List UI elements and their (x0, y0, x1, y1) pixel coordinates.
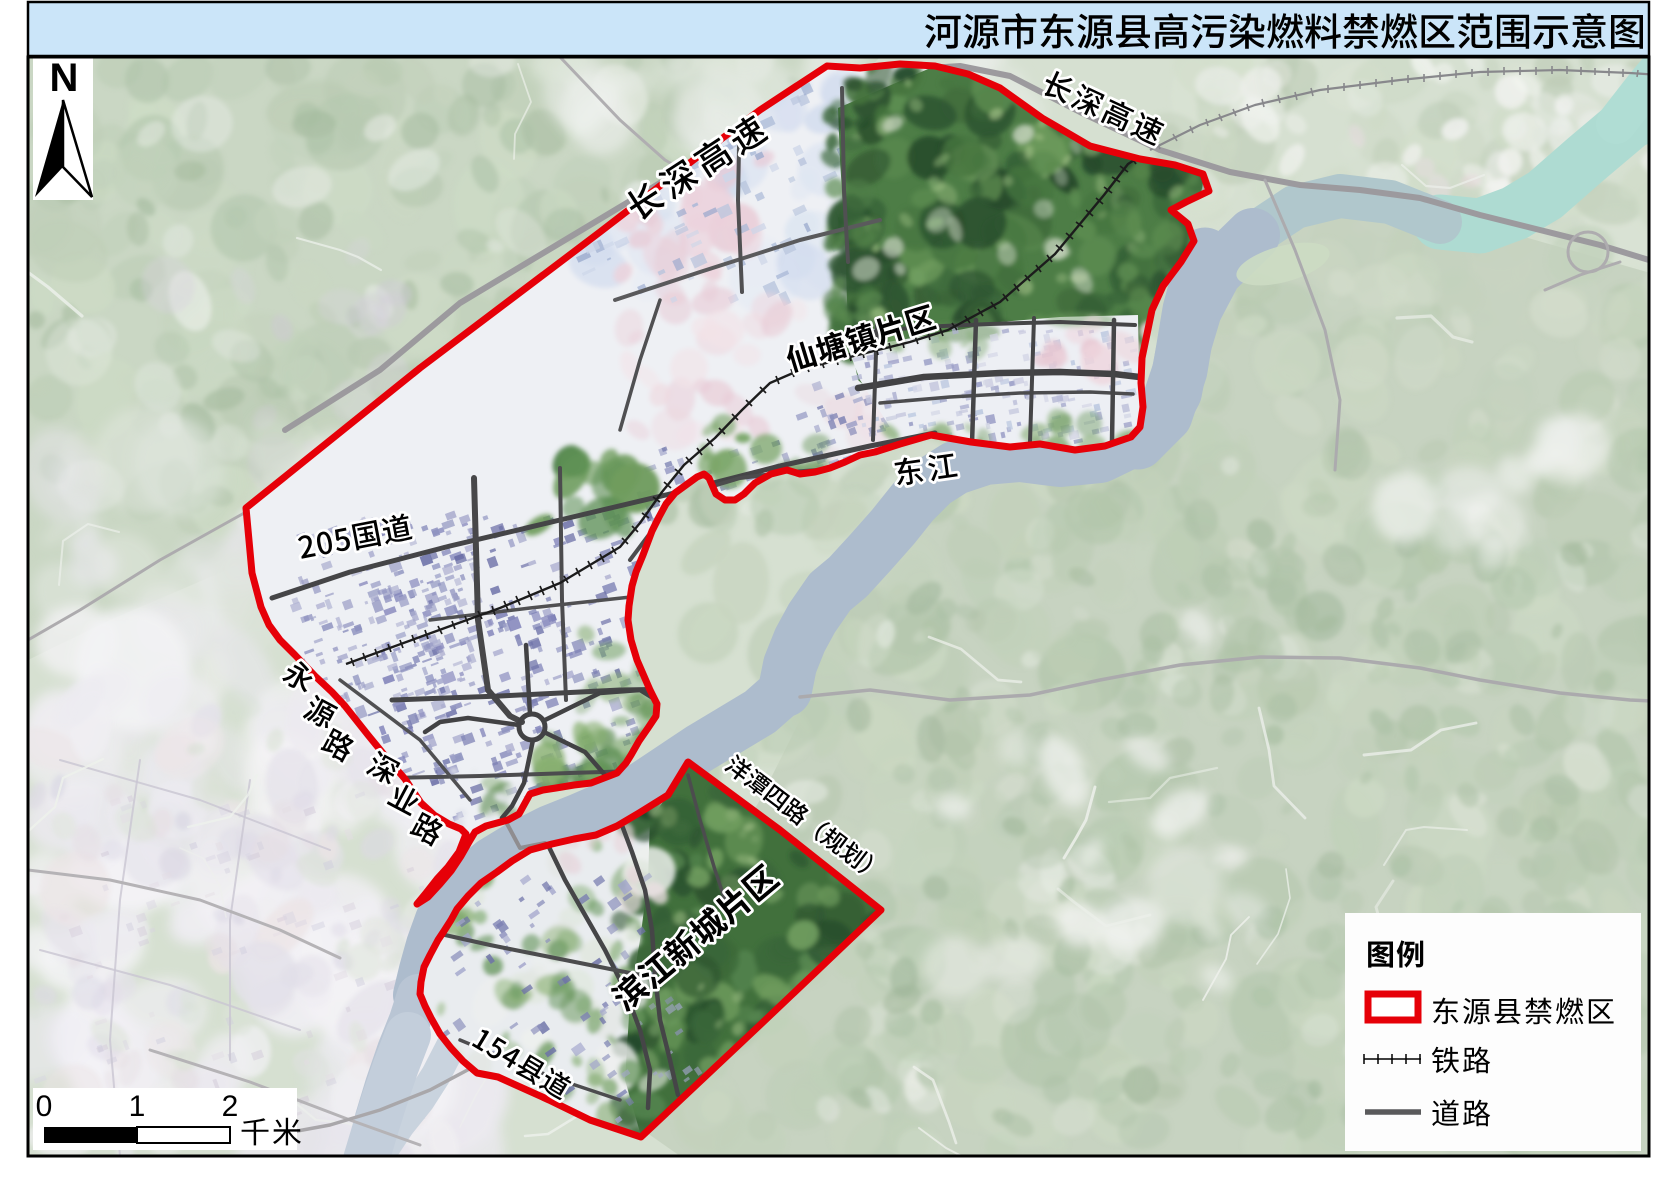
svg-text:2: 2 (222, 1090, 239, 1123)
svg-text:0: 0 (36, 1090, 53, 1123)
svg-text:1: 1 (129, 1090, 146, 1123)
svg-text:N: N (50, 56, 79, 100)
